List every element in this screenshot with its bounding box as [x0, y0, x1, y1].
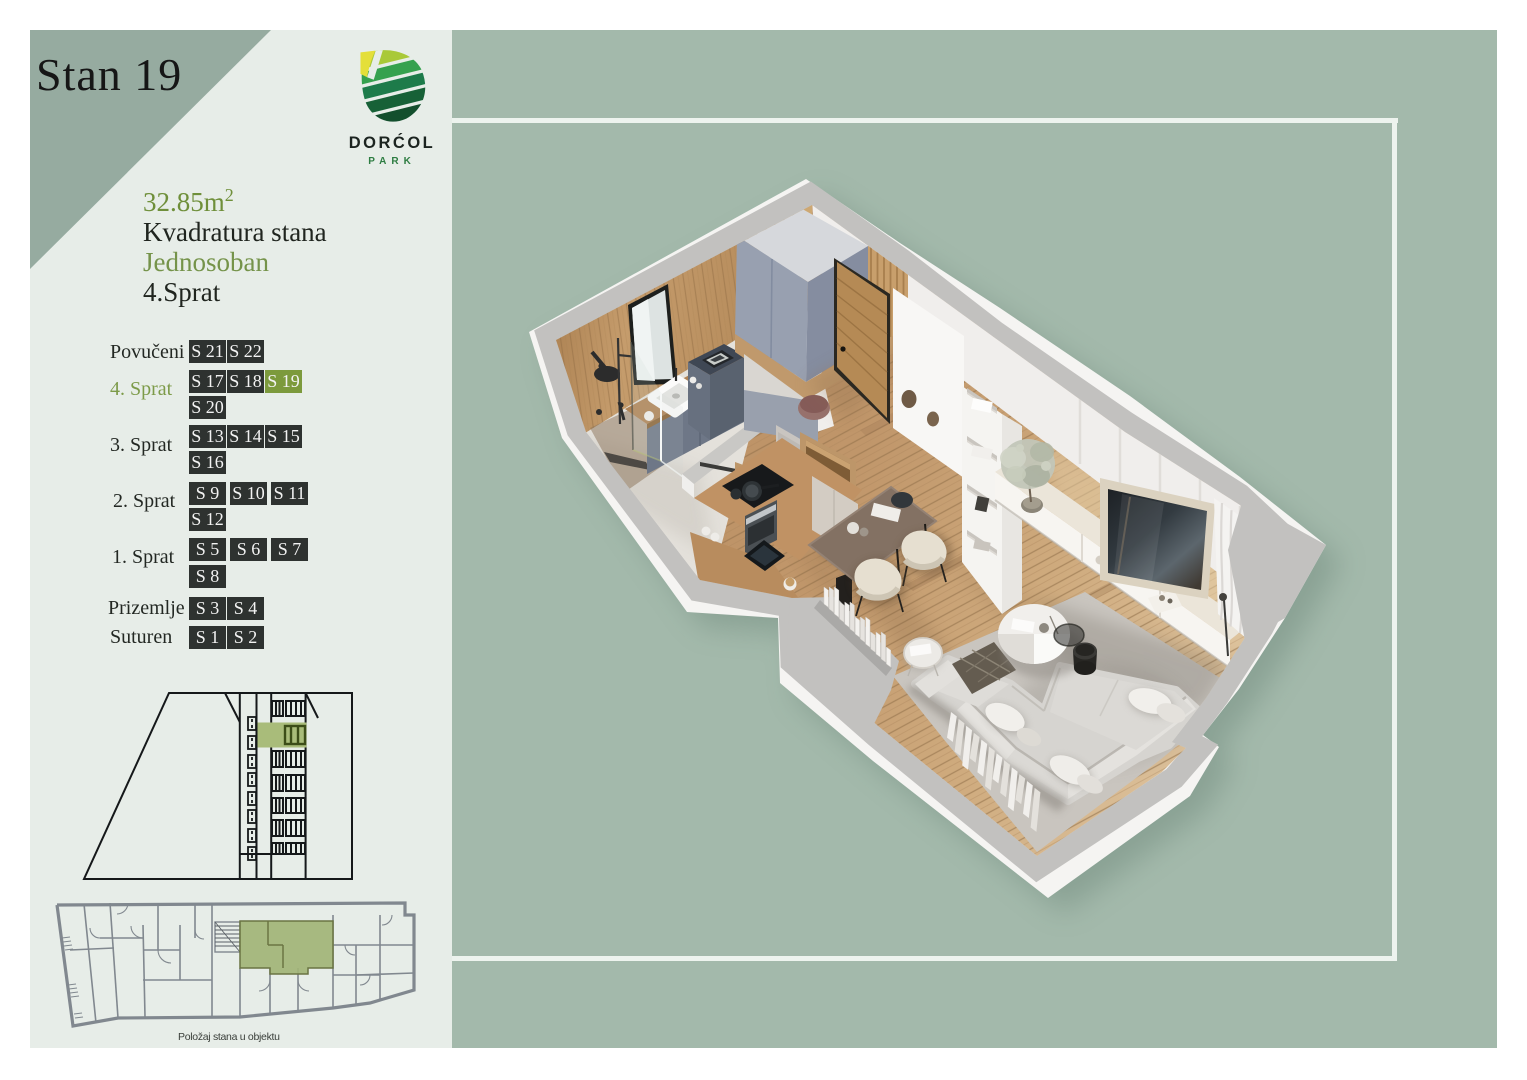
svg-text:DORĆOL: DORĆOL	[349, 133, 436, 152]
svg-text:PARK: PARK	[368, 156, 416, 167]
